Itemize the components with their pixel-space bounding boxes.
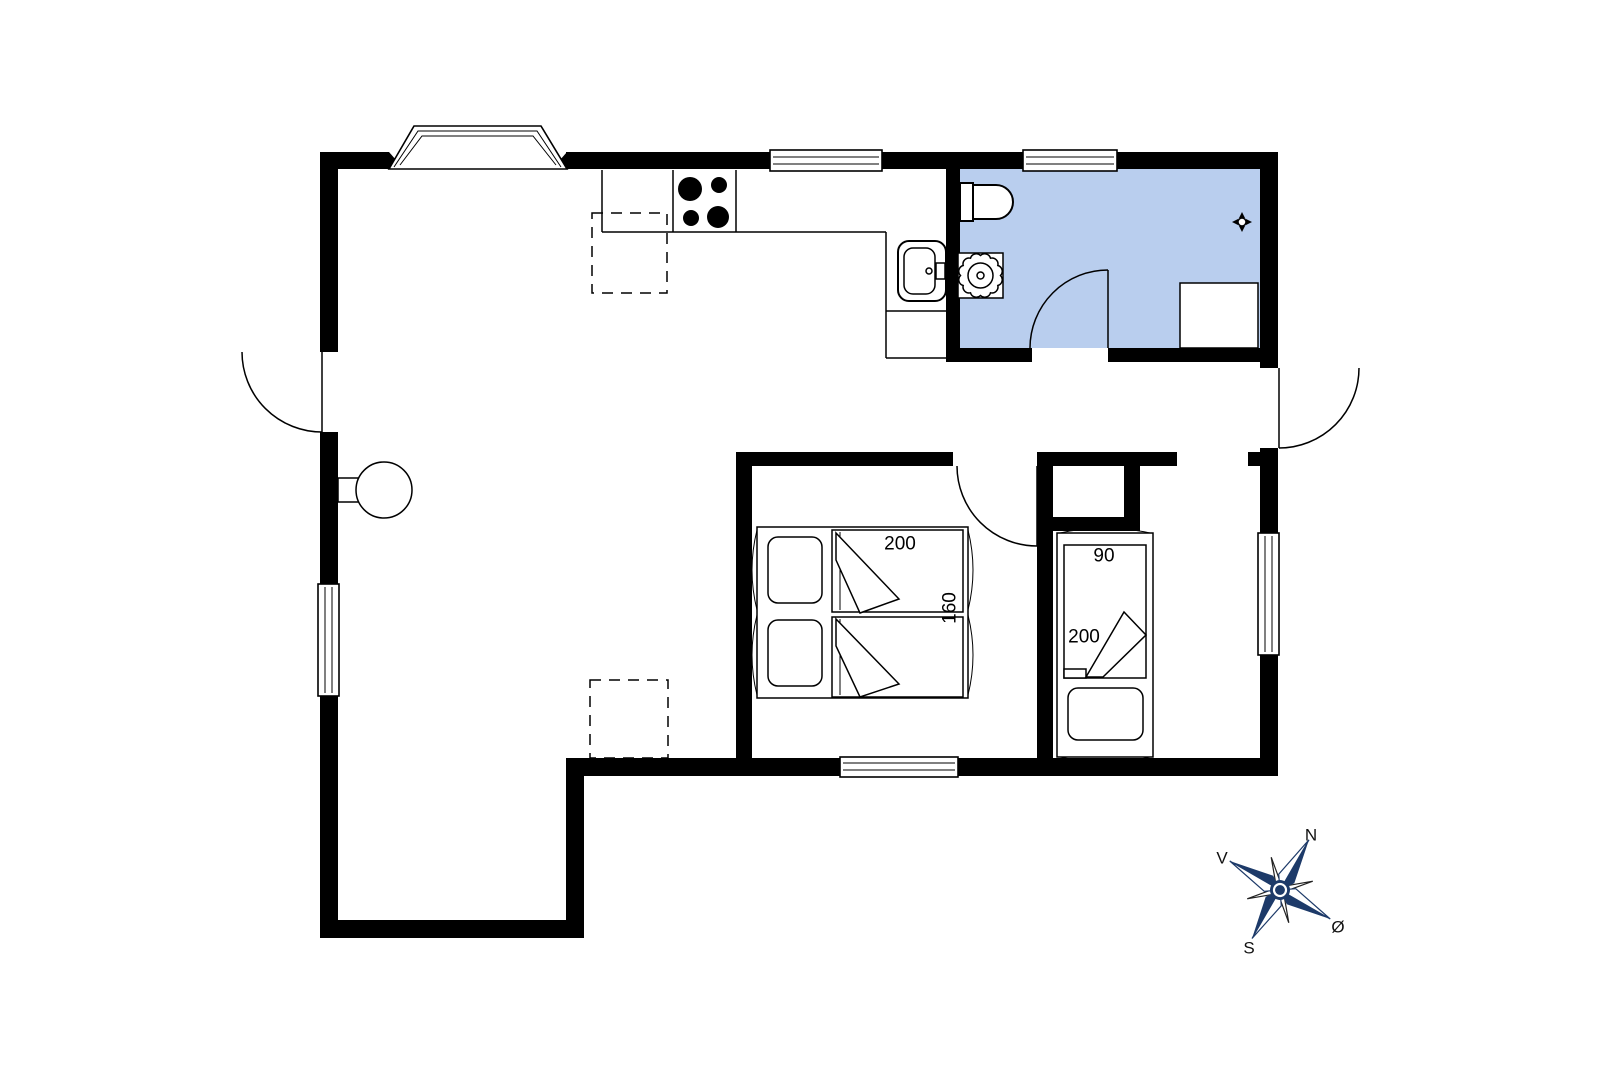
- stove-burner: [711, 177, 727, 193]
- sink-drain: [926, 268, 932, 274]
- washbasin-drain: [977, 272, 984, 279]
- living-room: [338, 462, 668, 758]
- compass-label-north: N: [1305, 826, 1317, 845]
- bay-window-outline: [389, 126, 567, 169]
- single-bed-width-label: 90: [1093, 546, 1114, 567]
- floorplan-canvas: 200 160 90 200 N V: [0, 0, 1600, 1066]
- bedroom-top-wall: [736, 452, 953, 466]
- compass-rose: N V S Ø: [1202, 811, 1359, 968]
- window-frame: [770, 150, 882, 171]
- window-left: [318, 584, 339, 696]
- wall-segment: [958, 758, 1278, 776]
- door-swing-arc: [1279, 368, 1359, 448]
- compass-label-west: V: [1216, 849, 1228, 868]
- window-top-1: [770, 150, 882, 171]
- double-bed: 200 160: [752, 527, 973, 698]
- wall-segment: [320, 152, 338, 352]
- window-frame: [840, 757, 958, 777]
- wall-segment: [1117, 152, 1278, 169]
- wall-segment: [566, 152, 770, 169]
- bedroom-right-wall: [1037, 452, 1053, 758]
- double-bed-length-label: 200: [884, 534, 916, 555]
- window-right: [1258, 533, 1279, 655]
- window-frame: [1023, 150, 1117, 171]
- double-bed-width-label: 160: [940, 592, 961, 624]
- pillow: [768, 537, 822, 603]
- compass-label-east: Ø: [1331, 918, 1344, 937]
- wall-segment: [320, 920, 584, 938]
- stove-burner: [678, 177, 702, 201]
- wall-stub: [1248, 452, 1260, 466]
- wall-segment: [1260, 152, 1278, 368]
- stove-burners-icon: [678, 177, 729, 228]
- sink-faucet: [936, 263, 945, 279]
- bathroom-bottom-wall: [946, 348, 1032, 362]
- shower-cabinet: [1180, 283, 1258, 348]
- window-frame: [318, 584, 339, 696]
- floor-drain-circle: [1238, 218, 1246, 226]
- bathroom-bottom-wall: [1108, 348, 1260, 362]
- window-bedroom: [840, 757, 958, 777]
- kitchen-sink-icon: [898, 241, 946, 301]
- window-top-2: [1023, 150, 1117, 171]
- single-bed: 90 200: [1057, 528, 1153, 762]
- pillow: [1068, 688, 1143, 740]
- wall-segment: [566, 758, 584, 938]
- wall-segment: [1260, 655, 1278, 776]
- pillow: [768, 620, 822, 686]
- single-bed-length-label: 200: [1068, 627, 1100, 648]
- wood-stove-icon: [338, 462, 412, 518]
- compass-label-south: S: [1243, 939, 1254, 958]
- wall-segment: [566, 758, 840, 776]
- entrance-door-left: [242, 352, 322, 432]
- counter-edge: [602, 170, 946, 358]
- toilet-bowl: [973, 185, 1013, 219]
- bay-window: [389, 126, 567, 169]
- wall-segment: [320, 432, 338, 584]
- wall-segment: [1260, 448, 1278, 533]
- furniture-placeholder-dashed: [590, 680, 668, 758]
- wall-segment: [882, 152, 1023, 169]
- window-frame: [1258, 533, 1279, 655]
- stove-burner: [707, 206, 729, 228]
- bedroom-left-wall: [736, 452, 752, 758]
- stove-burner: [683, 210, 699, 226]
- wall-segment: [320, 696, 338, 938]
- door-swing-arc: [242, 352, 322, 432]
- entrance-door-right: [1279, 368, 1359, 448]
- compass-star: [1202, 811, 1359, 968]
- mattress-foot-strip: [1064, 669, 1086, 678]
- closet-top-wall: [1053, 452, 1177, 466]
- washbasin-icon: [958, 253, 1003, 298]
- toilet-icon: [960, 183, 1013, 221]
- kitchen: [592, 170, 946, 358]
- appliance-placeholder-dashed: [592, 213, 667, 293]
- wood-stove-body: [356, 462, 412, 518]
- toilet-tank: [960, 183, 973, 221]
